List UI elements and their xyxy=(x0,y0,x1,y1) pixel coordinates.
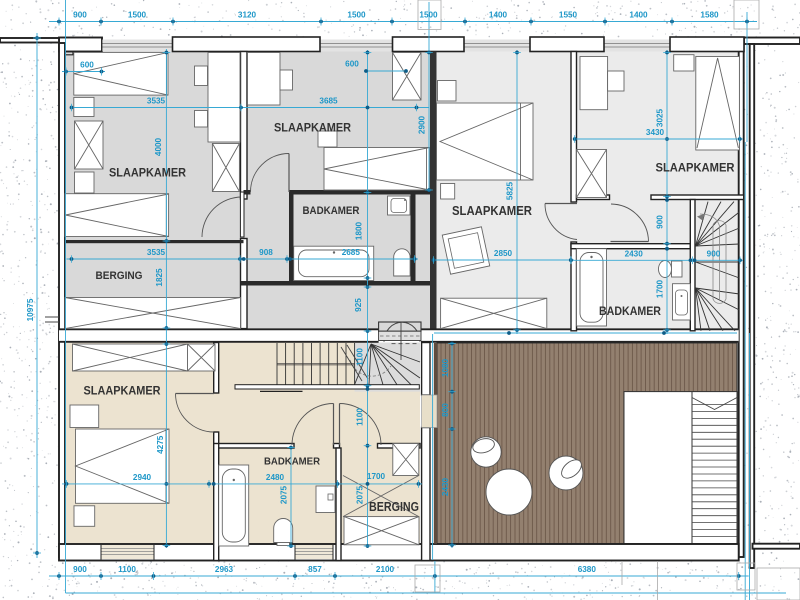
svg-text:1825: 1825 xyxy=(155,268,164,287)
svg-text:BADKAMER: BADKAMER xyxy=(599,306,662,318)
svg-text:2900: 2900 xyxy=(418,115,427,134)
svg-text:3535: 3535 xyxy=(147,97,166,106)
svg-text:1550: 1550 xyxy=(559,11,578,20)
svg-text:900: 900 xyxy=(73,11,87,20)
svg-text:3120: 3120 xyxy=(238,11,257,20)
svg-text:857: 857 xyxy=(308,565,322,574)
svg-text:900: 900 xyxy=(656,215,665,229)
svg-text:1580: 1580 xyxy=(700,11,719,20)
svg-text:2430: 2430 xyxy=(625,249,644,258)
svg-text:925: 925 xyxy=(354,298,363,312)
svg-text:1400: 1400 xyxy=(629,11,648,20)
svg-text:5825: 5825 xyxy=(506,181,515,200)
svg-text:600: 600 xyxy=(80,61,94,70)
svg-text:6380: 6380 xyxy=(578,565,597,574)
svg-text:2940: 2940 xyxy=(133,473,152,482)
svg-text:1500: 1500 xyxy=(419,11,438,20)
svg-text:BADKAMER: BADKAMER xyxy=(264,456,320,468)
svg-text:1800: 1800 xyxy=(355,221,364,240)
svg-text:1400: 1400 xyxy=(489,11,508,20)
svg-text:2100: 2100 xyxy=(376,565,395,574)
svg-text:1100: 1100 xyxy=(118,565,136,574)
svg-text:2480: 2480 xyxy=(266,473,285,482)
svg-text:4000: 4000 xyxy=(154,137,163,156)
svg-text:SLAAPKAMER: SLAAPKAMER xyxy=(274,123,352,135)
svg-text:2075: 2075 xyxy=(356,485,365,504)
svg-text:600: 600 xyxy=(345,60,359,69)
svg-text:1500: 1500 xyxy=(347,11,366,20)
svg-text:3430: 3430 xyxy=(646,128,665,137)
svg-text:1700: 1700 xyxy=(656,279,665,298)
svg-text:BADKAMER: BADKAMER xyxy=(303,205,360,217)
svg-text:3685: 3685 xyxy=(319,97,338,106)
svg-text:2963: 2963 xyxy=(215,565,234,574)
svg-text:SLAAPKAMER: SLAAPKAMER xyxy=(84,386,162,398)
svg-text:BERGING: BERGING xyxy=(369,500,419,514)
svg-text:1700: 1700 xyxy=(367,472,386,481)
svg-text:10975: 10975 xyxy=(26,298,35,321)
svg-text:SLAAPKAMER: SLAAPKAMER xyxy=(656,161,735,175)
svg-text:800: 800 xyxy=(441,403,450,417)
svg-text:2430: 2430 xyxy=(441,477,450,496)
svg-text:900: 900 xyxy=(707,249,721,258)
svg-text:2685: 2685 xyxy=(342,248,361,257)
svg-text:4275: 4275 xyxy=(156,435,165,454)
svg-text:2850: 2850 xyxy=(494,249,513,258)
svg-text:908: 908 xyxy=(259,248,273,257)
svg-text:1500: 1500 xyxy=(128,11,147,20)
svg-text:SLAAPKAMER: SLAAPKAMER xyxy=(452,204,532,218)
svg-text:1100: 1100 xyxy=(356,408,365,426)
svg-text:1100: 1100 xyxy=(356,348,365,366)
svg-text:SLAAPKAMER: SLAAPKAMER xyxy=(109,168,187,180)
svg-text:900: 900 xyxy=(73,565,87,574)
svg-text:3025: 3025 xyxy=(656,108,665,127)
svg-text:BERGING: BERGING xyxy=(96,270,143,282)
svg-text:1080: 1080 xyxy=(441,358,450,377)
svg-text:2075: 2075 xyxy=(280,485,289,504)
svg-text:3535: 3535 xyxy=(147,248,166,257)
